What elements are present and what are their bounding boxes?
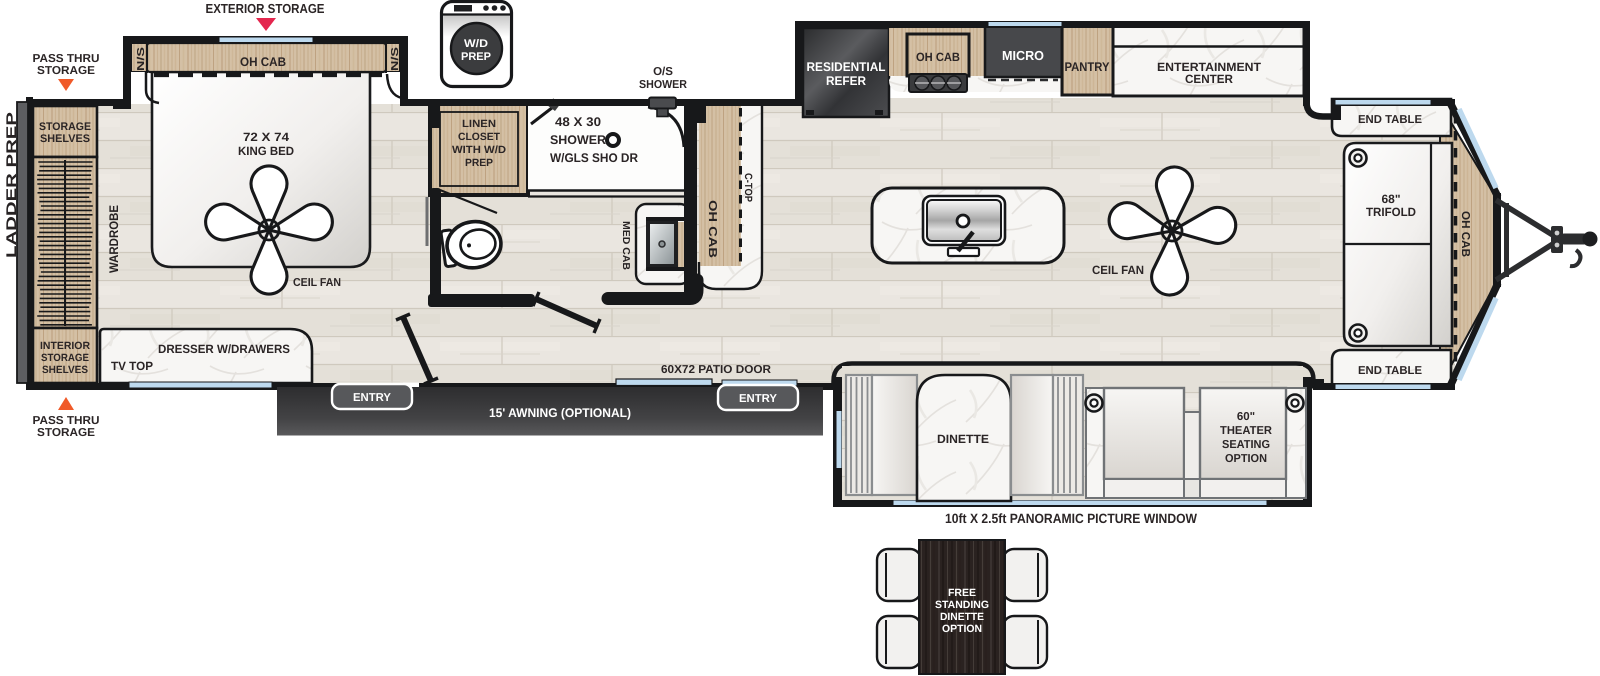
svg-text:RESIDENTIAL: RESIDENTIAL bbox=[807, 60, 886, 74]
svg-text:MED CAB: MED CAB bbox=[620, 221, 631, 270]
svg-text:PANTRY: PANTRY bbox=[1065, 60, 1111, 74]
svg-text:OH CAB: OH CAB bbox=[1459, 211, 1471, 257]
svg-text:OPTION: OPTION bbox=[1225, 453, 1267, 465]
svg-text:EXTERIOR STORAGE: EXTERIOR STORAGE bbox=[206, 1, 325, 16]
svg-text:OH CAB: OH CAB bbox=[240, 55, 286, 69]
svg-text:WITH W/D: WITH W/D bbox=[452, 144, 506, 156]
svg-text:SHOWER: SHOWER bbox=[550, 133, 606, 147]
svg-text:ENTRY: ENTRY bbox=[353, 392, 391, 404]
svg-text:THEATER: THEATER bbox=[1220, 425, 1273, 437]
svg-text:CENTER: CENTER bbox=[1185, 72, 1233, 86]
svg-text:PREP: PREP bbox=[461, 51, 491, 63]
svg-text:LINEN: LINEN bbox=[462, 118, 496, 130]
svg-text:10ft X 2.5ft PANORAMIC PICTURE: 10ft X 2.5ft PANORAMIC PICTURE WINDOW bbox=[945, 511, 1197, 526]
svg-text:MICRO: MICRO bbox=[1002, 48, 1044, 63]
svg-text:INTERIOR: INTERIOR bbox=[40, 340, 90, 352]
svg-text:OPTION: OPTION bbox=[942, 623, 982, 635]
svg-text:KING BED: KING BED bbox=[238, 144, 294, 158]
svg-text:END TABLE: END TABLE bbox=[1358, 114, 1422, 126]
svg-text:W/D: W/D bbox=[464, 38, 488, 50]
svg-text:N/S: N/S bbox=[390, 47, 401, 71]
svg-text:CEIL FAN: CEIL FAN bbox=[293, 277, 341, 289]
svg-text:LADDER PREP: LADDER PREP bbox=[3, 112, 19, 258]
svg-text:OH CAB: OH CAB bbox=[916, 50, 960, 64]
svg-text:STORAGE: STORAGE bbox=[37, 427, 95, 439]
svg-text:60X72 PATIO DOOR: 60X72 PATIO DOOR bbox=[661, 364, 772, 376]
svg-text:END TABLE: END TABLE bbox=[1358, 365, 1422, 377]
svg-text:PASS THRU: PASS THRU bbox=[33, 53, 100, 65]
svg-text:N/S: N/S bbox=[136, 47, 147, 71]
svg-text:DRESSER W/DRAWERS: DRESSER W/DRAWERS bbox=[158, 342, 290, 356]
svg-text:STANDING: STANDING bbox=[935, 599, 989, 611]
svg-text:ENTRY: ENTRY bbox=[739, 393, 777, 405]
svg-text:W/GLS SHO DR: W/GLS SHO DR bbox=[550, 151, 638, 165]
svg-text:PREP: PREP bbox=[465, 157, 493, 169]
svg-text:SHELVES: SHELVES bbox=[42, 364, 88, 376]
svg-text:SHOWER: SHOWER bbox=[639, 79, 688, 91]
svg-text:OH CAB: OH CAB bbox=[706, 200, 718, 258]
svg-text:72 X 74: 72 X 74 bbox=[243, 130, 289, 144]
svg-text:WARDROBE: WARDROBE bbox=[107, 205, 121, 273]
svg-text:PASS THRU: PASS THRU bbox=[33, 415, 100, 427]
svg-text:FREE: FREE bbox=[948, 587, 976, 599]
svg-text:O/S: O/S bbox=[653, 66, 673, 78]
svg-text:TRIFOLD: TRIFOLD bbox=[1366, 205, 1416, 219]
svg-text:STORAGE: STORAGE bbox=[37, 65, 95, 77]
svg-text:68": 68" bbox=[1381, 192, 1400, 206]
svg-text:48 X 30: 48 X 30 bbox=[555, 115, 601, 129]
svg-text:60": 60" bbox=[1237, 411, 1255, 423]
svg-text:DINETTE: DINETTE bbox=[940, 611, 984, 623]
svg-text:REFER: REFER bbox=[826, 74, 866, 88]
svg-text:CLOSET: CLOSET bbox=[458, 131, 501, 143]
svg-text:15' AWNING (OPTIONAL): 15' AWNING (OPTIONAL) bbox=[489, 406, 631, 420]
svg-text:DINETTE: DINETTE bbox=[937, 432, 989, 446]
svg-text:TV TOP: TV TOP bbox=[111, 359, 153, 373]
svg-text:STORAGE: STORAGE bbox=[41, 352, 89, 364]
svg-text:STORAGE: STORAGE bbox=[39, 121, 91, 133]
svg-text:C-TOP: C-TOP bbox=[742, 173, 754, 202]
svg-text:CEIL FAN: CEIL FAN bbox=[1092, 263, 1144, 277]
svg-text:SEATING: SEATING bbox=[1222, 439, 1270, 451]
svg-text:SHELVES: SHELVES bbox=[40, 133, 90, 145]
